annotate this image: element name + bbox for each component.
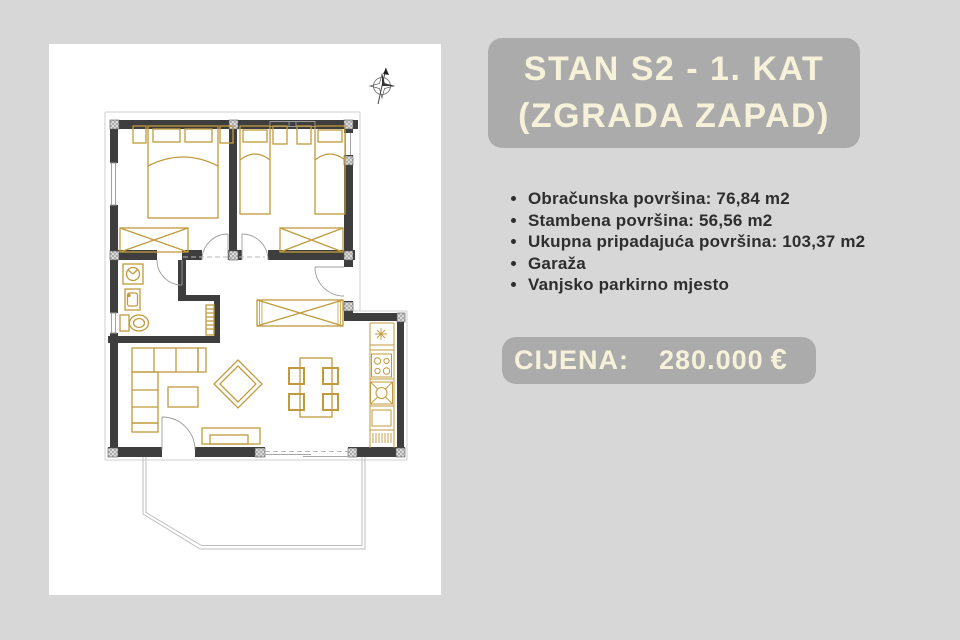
dishwasher-hatch <box>373 433 391 443</box>
price-label: CIJENA: <box>514 345 629 376</box>
toilet-icon <box>120 315 149 331</box>
detail-item-stambena: Stambena površina: 56,56 m2 <box>528 210 928 232</box>
price-amount: 280.000 <box>659 345 764 376</box>
detail-item-garaza: Garaža <box>528 253 928 275</box>
wardrobe-bedroom-1 <box>120 228 188 252</box>
floor-plan-drawing <box>49 44 441 595</box>
corner-sofa <box>132 348 206 432</box>
details-list: Obračunska površina: 76,84 m2 Stambena p… <box>508 188 928 296</box>
real-estate-flyer: { "title": { "line1": "STAN S2 - 1. KAT"… <box>0 0 960 640</box>
wardrobe-bedroom-2 <box>280 228 343 252</box>
dining-chairs <box>289 368 338 410</box>
listing-title-box: STAN S2 - 1. KAT (ZGRADA ZAPAD) <box>488 38 860 148</box>
floor-plan-panel <box>49 44 441 595</box>
kitchen-sink-icon <box>371 382 393 404</box>
burner-symbol-icon <box>375 328 387 340</box>
tv-bench <box>202 428 260 444</box>
detail-item-ukupna: Ukupna pripadajuća površina: 103,37 m2 <box>528 231 928 253</box>
listing-title-line1: STAN S2 - 1. KAT <box>524 46 824 93</box>
washing-machine-icon <box>123 264 143 284</box>
terrace-outline <box>143 457 365 549</box>
listing-details: Obračunska površina: 76,84 m2 Stambena p… <box>508 188 928 296</box>
kitchen-counter <box>370 323 394 448</box>
single-bed-left <box>240 126 270 214</box>
listing-title-line2: (ZGRADA ZAPAD) <box>518 93 830 140</box>
cooktop-icon <box>372 354 392 377</box>
euro-sign: € <box>771 344 788 377</box>
kitchen-cabinet <box>372 410 391 426</box>
coffee-table <box>168 387 198 407</box>
bathroom-sink-icon <box>125 289 140 310</box>
double-bed <box>133 126 233 218</box>
radiator-icon <box>206 305 214 335</box>
rug <box>214 360 262 408</box>
detail-item-parking: Vanjsko parkirno mjesto <box>528 274 928 296</box>
detail-item-obracunska: Obračunska površina: 76,84 m2 <box>528 188 928 210</box>
north-compass-icon <box>370 68 394 104</box>
price-box: CIJENA: 280.000 € <box>502 337 816 384</box>
single-bed-right <box>315 126 345 214</box>
hallway-closet <box>257 300 343 326</box>
dashed-lines <box>183 257 350 457</box>
